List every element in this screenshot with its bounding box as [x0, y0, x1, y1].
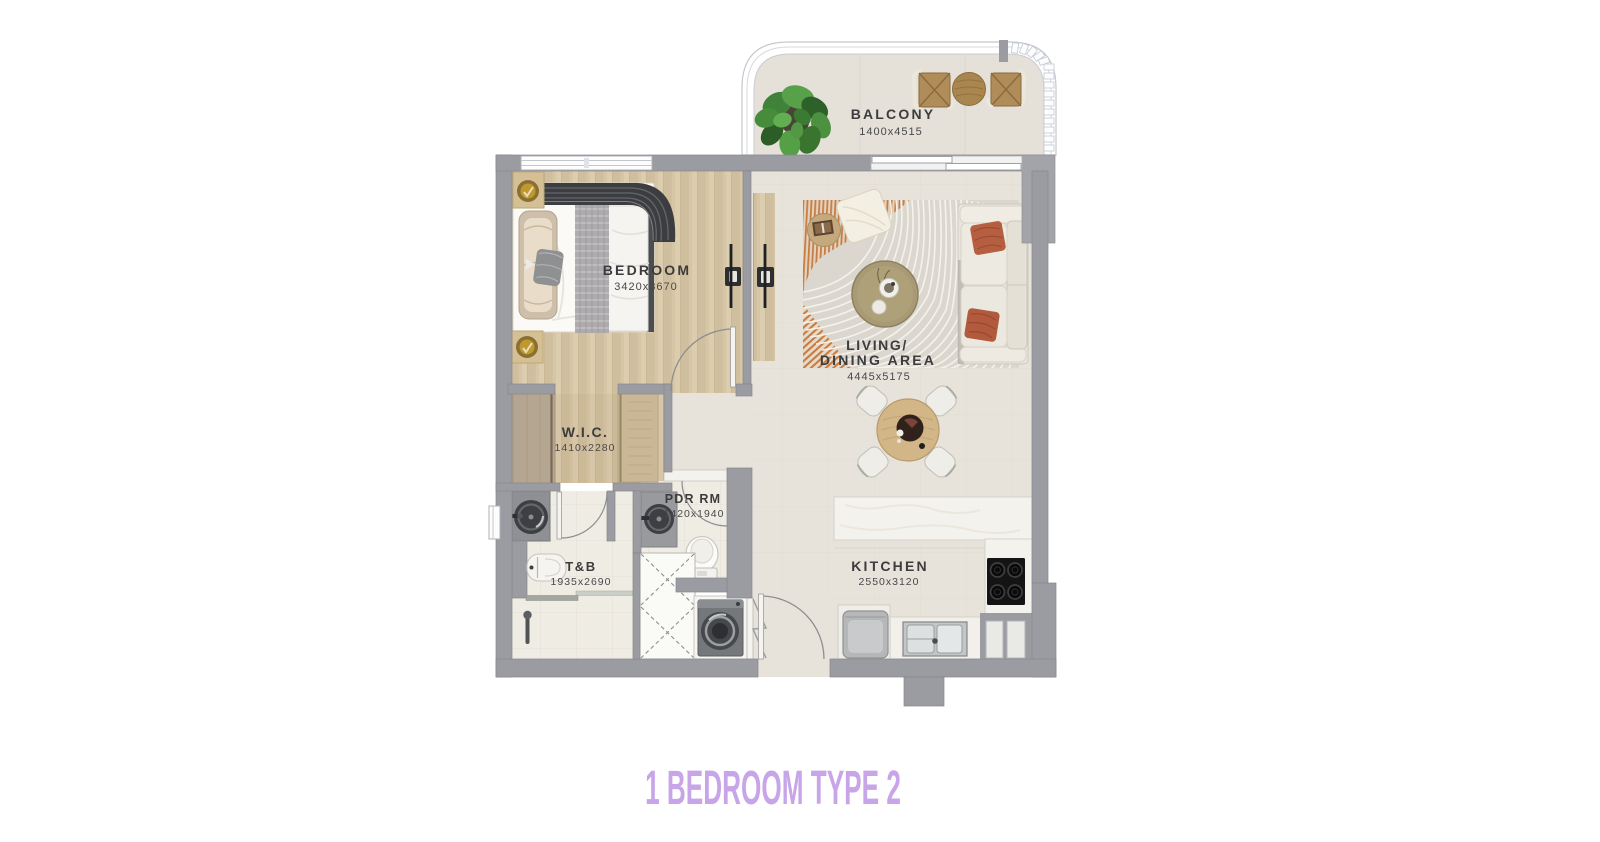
svg-text:BEDROOM: BEDROOM: [603, 262, 692, 278]
svg-text:1420x1940: 1420x1940: [664, 508, 725, 520]
svg-text:1410x2280: 1410x2280: [555, 442, 616, 454]
svg-text:LIVING/: LIVING/: [846, 337, 908, 353]
svg-text:DINING AREA: DINING AREA: [820, 352, 936, 368]
svg-text:W.I.C.: W.I.C.: [562, 424, 609, 440]
svg-text:BALCONY: BALCONY: [851, 106, 936, 122]
svg-text:1935x2690: 1935x2690: [551, 576, 612, 588]
svg-text:KITCHEN: KITCHEN: [851, 558, 929, 574]
svg-text:1 BEDROOM TYPE 2: 1 BEDROOM TYPE 2: [645, 762, 901, 815]
svg-text:1400x4515: 1400x4515: [859, 126, 922, 138]
svg-text:PDR RM: PDR RM: [665, 492, 722, 506]
svg-text:2550x3120: 2550x3120: [859, 576, 920, 588]
svg-text:3420x3670: 3420x3670: [614, 281, 677, 293]
svg-text:4445x5175: 4445x5175: [847, 371, 910, 383]
svg-text:T&B: T&B: [565, 559, 597, 574]
